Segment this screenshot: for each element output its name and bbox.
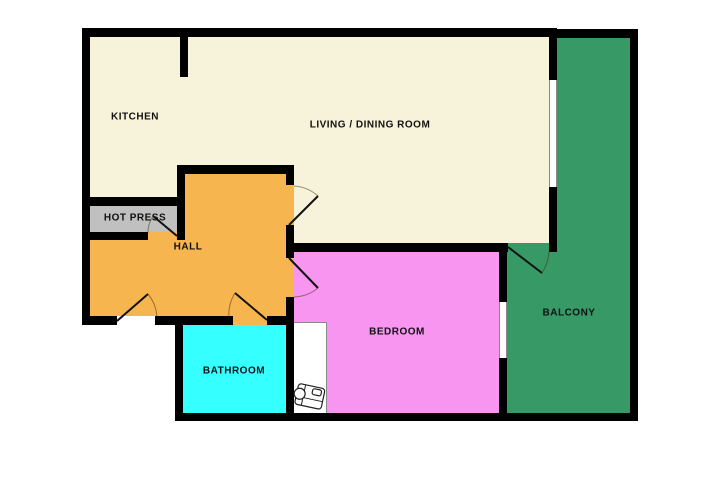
room-label-kitchen: KITCHEN bbox=[111, 112, 159, 123]
wall bbox=[630, 29, 638, 421]
wall bbox=[177, 165, 185, 240]
wall bbox=[175, 316, 183, 421]
wall bbox=[286, 165, 294, 185]
room-label-hall: HALL bbox=[174, 242, 203, 253]
floor-plan: KITCHEN LIVING / DINING ROOM HOT PRESS H… bbox=[0, 0, 720, 480]
wall bbox=[549, 37, 557, 80]
wall bbox=[177, 165, 294, 174]
room-label-hot-press: HOT PRESS bbox=[104, 213, 166, 224]
room-balcony-upper bbox=[557, 38, 630, 250]
window-bedroom bbox=[499, 302, 507, 358]
window-living-room bbox=[549, 80, 557, 187]
wall bbox=[180, 37, 188, 77]
wall bbox=[507, 413, 638, 421]
wall bbox=[82, 28, 90, 325]
room-label-bedroom: BEDROOM bbox=[369, 327, 425, 338]
room-label-balcony: BALCONY bbox=[543, 308, 596, 319]
room-label-living: LIVING / DINING ROOM bbox=[310, 120, 431, 131]
wall bbox=[82, 232, 148, 240]
wall bbox=[286, 225, 294, 258]
wall bbox=[175, 413, 507, 421]
wall bbox=[499, 243, 507, 302]
room-label-bathroom: BATHROOM bbox=[203, 366, 265, 377]
room-balcony-lower bbox=[507, 243, 630, 413]
wall bbox=[293, 243, 508, 252]
wall bbox=[267, 316, 294, 325]
entrance-opening bbox=[117, 316, 155, 325]
wall bbox=[549, 29, 638, 38]
wall bbox=[82, 28, 557, 37]
wall bbox=[82, 197, 183, 206]
wall bbox=[82, 316, 117, 325]
wall bbox=[155, 316, 233, 325]
room-hall-upper bbox=[177, 165, 294, 316]
wall bbox=[499, 358, 507, 421]
wardrobe-nook bbox=[294, 322, 327, 413]
wall bbox=[549, 187, 557, 252]
